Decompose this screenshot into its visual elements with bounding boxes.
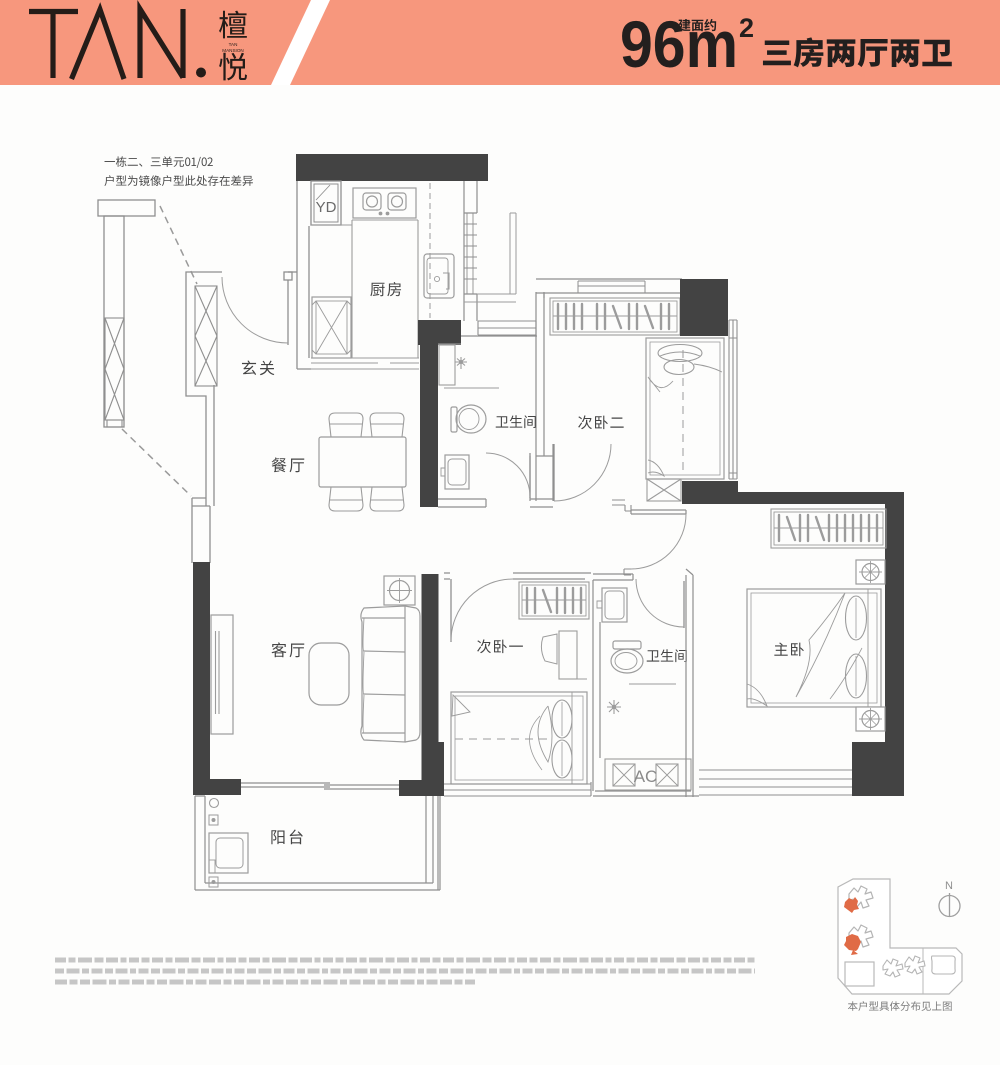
svg-text:96m: 96m	[620, 7, 738, 81]
svg-text:YD: YD	[316, 199, 337, 216]
svg-text:N: N	[945, 880, 953, 892]
svg-text:AC: AC	[634, 767, 658, 786]
svg-text:MANSION: MANSION	[222, 48, 243, 53]
svg-text:2: 2	[739, 13, 754, 43]
svg-text:TAN: TAN	[229, 42, 238, 47]
